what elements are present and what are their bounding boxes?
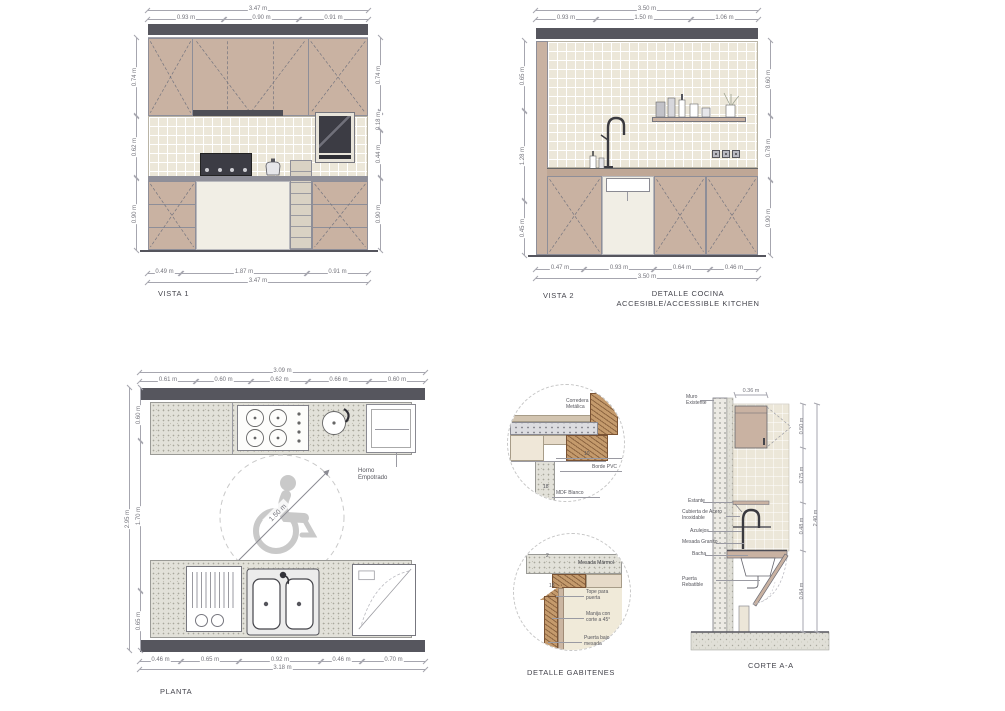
counter-bottles	[588, 148, 606, 170]
vista1-knee-space	[196, 181, 290, 250]
dim-label: 0.84 m	[799, 582, 805, 599]
vista1-upper-cabinet-right	[308, 38, 368, 116]
planta-wall-top	[140, 388, 425, 400]
dim-label: 0.60 m	[387, 377, 407, 384]
cabinet-side-block	[510, 435, 544, 461]
vista1-dim-top-segments: 0.93 m 0.90 m 0.91 m	[148, 11, 368, 21]
door-x-symbol	[707, 177, 757, 254]
vista1-floor-line	[140, 250, 378, 252]
vista2-sink-bowl	[606, 178, 650, 192]
vista1-dim-bottom-total: 3.47 m	[148, 274, 368, 284]
dim-label: 0.44 m	[376, 144, 382, 164]
liftdoor-v-symbol	[193, 39, 308, 115]
leader-borde	[560, 471, 622, 472]
planta-dish-rack	[186, 566, 242, 632]
dim-label: 3.18 m	[272, 665, 292, 672]
door-x-symbol	[313, 182, 367, 249]
vista2-base-door-mid	[654, 176, 706, 255]
vista2-base-door-left	[547, 176, 602, 255]
shelf-section	[733, 501, 769, 505]
vista1-base-drawers-right	[312, 181, 368, 250]
vista2-shelf	[652, 117, 746, 122]
leader-puerta	[548, 642, 582, 643]
detail-kitchen-subtitle-1: DETALLE COCINA	[608, 289, 768, 298]
leader-estante	[703, 502, 733, 503]
wood-rail	[552, 574, 586, 588]
dim-label: 1.50 m	[633, 15, 653, 22]
base-leg	[739, 606, 749, 632]
dim-label: 0.74 m	[132, 67, 138, 87]
vista1-title: VISTA 1	[158, 289, 189, 298]
slide-label: Corredera Metálica	[566, 398, 596, 410]
dim-label: 2.95 m	[125, 509, 131, 529]
dim-label: 0.90 m	[766, 207, 772, 227]
estante-label: Estante	[688, 498, 705, 504]
vista1-upper-cabinet-middle	[192, 38, 309, 116]
outlet-icon	[712, 150, 720, 158]
planta-dim-left-total: 2.95 m	[121, 388, 131, 650]
dim-label: 0.62 m	[269, 377, 289, 384]
door-x-symbol	[149, 182, 195, 249]
dim-label: 0.60 m	[136, 404, 142, 424]
cubierta-label: Cubierta de Acero Inoxidable	[682, 509, 726, 521]
dim-18: 18	[543, 484, 549, 490]
dim-label: 1.70 m	[136, 506, 142, 526]
dim-label: 0.93 m	[176, 15, 196, 22]
leader-bacha	[705, 555, 748, 556]
dim-label: 0.65 m	[136, 610, 142, 630]
vista2-dim-left: 0.65 m 1.28 m 0.45 m	[516, 41, 526, 255]
door-x-symbol	[149, 39, 192, 115]
dim-line-10	[556, 458, 622, 459]
dim-label: 0.93 m	[556, 15, 576, 22]
dim-label: 0.90 m	[376, 204, 382, 224]
dim-label: 2.40 m	[813, 509, 819, 526]
dim-label: 0.90 m	[251, 15, 271, 22]
door-x-symbol	[309, 39, 367, 115]
dim-18b: 18	[549, 583, 555, 589]
oven-label: Horno Empotrado	[358, 468, 402, 482]
dim-label: 0.75 m	[799, 466, 805, 483]
planta-round-sink	[318, 404, 354, 440]
base-line	[510, 461, 606, 462]
vista2-dim-top-segments: 0.93 m 1.50 m 1.06 m	[536, 11, 758, 21]
oven-glass	[319, 116, 351, 153]
upper-cabinet-section	[735, 406, 767, 448]
dim-label: 0.78 m	[766, 138, 772, 158]
door-x-symbol	[548, 177, 601, 254]
dim-label: 0.60 m	[766, 68, 772, 88]
vista2-title: VISTA 2	[543, 291, 574, 300]
vista1-drawer-tower	[290, 160, 312, 250]
leader-manija	[552, 618, 584, 619]
cooktop-knobs	[205, 168, 247, 172]
planta-title: PLANTA	[160, 687, 192, 696]
door-swing-plan	[353, 565, 415, 635]
metal-slide-rail	[510, 422, 598, 435]
dim-label: 1.06 m	[714, 15, 734, 22]
planta-dim-left: 0.60 m 1.70 m 0.65 m	[132, 388, 142, 650]
wall-finish-strip	[727, 398, 733, 632]
vista1-oven	[315, 112, 355, 163]
puerta-rebatible-label: Puerta Rebatible	[682, 576, 716, 588]
mesada-marmol-label: Mesada Mármol	[578, 560, 618, 566]
vista1-dim-right: 0.74 m 0.18 m 0.44 m 0.90 m	[372, 38, 382, 250]
leader-mesada	[716, 543, 744, 544]
bacha-label: Bacha	[692, 551, 706, 557]
vista1-upper-cabinet-left	[148, 38, 193, 116]
corte-title: CORTE A-A	[748, 661, 794, 670]
vista2-dim-bottom-total: 3.50 m	[536, 270, 758, 280]
planta-dim-bottom-total: 3.18 m	[140, 661, 425, 671]
azulejos-label: Azulejos	[690, 528, 709, 534]
dim-label: 3.50 m	[637, 274, 657, 281]
drawing-sheet: 3.47 m 0.93 m 0.90 m 0.91 m	[0, 0, 1005, 711]
leader-mdf	[552, 497, 600, 498]
dim-10: 10	[584, 451, 590, 457]
dim-label: 0.45 m	[520, 218, 526, 238]
leader-puerta-rebatible	[716, 580, 760, 581]
vista1-dim-left: 0.74 m 0.62 m 0.90 m	[128, 38, 138, 250]
outlet-icon	[732, 150, 740, 158]
dim-label: 0.61 m	[158, 377, 178, 384]
planta-double-sink	[246, 568, 320, 636]
wheelchair-icon	[256, 475, 313, 551]
vista1-base-drawers-left	[148, 181, 196, 250]
vista2-floor-line	[528, 255, 766, 257]
planta-dim-top-segments: 0.61 m 0.60 m 0.62 m 0.66 m 0.60 m	[140, 373, 425, 383]
dim-label: 0.62 m	[132, 137, 138, 157]
outlet-icon	[722, 150, 730, 158]
beige-rail	[586, 574, 622, 588]
dim-label: 0.66 m	[328, 377, 348, 384]
vista1-cooktop	[200, 153, 252, 176]
oven-control-strip	[319, 155, 351, 159]
door-x-symbol	[655, 177, 705, 254]
kettle-icon	[264, 157, 282, 176]
leader-azulejos	[708, 531, 742, 532]
detalle-title: DETALLE GABITENES	[527, 668, 615, 677]
dim-label: 0.65 m	[520, 66, 526, 86]
dim-label: 0.90 m	[132, 204, 138, 224]
mesada-granito-label: Mesada Granito	[682, 539, 718, 545]
planta-oven	[366, 404, 416, 453]
vista2-dim-right: 0.60 m 0.78 m 0.90 m	[762, 41, 772, 255]
planta-corner-unit	[352, 564, 416, 636]
leader-muro	[700, 400, 714, 401]
manija-label: Manija con corte a 45°	[586, 611, 618, 623]
dim-label: 0.74 m	[376, 65, 382, 85]
corte-section-drawing: 0.36 m 0.50 m	[683, 386, 835, 668]
borde-pvc-label: Borde PVC	[592, 464, 617, 470]
floor-slab	[691, 632, 829, 650]
leader-tope	[556, 596, 584, 597]
dim-label: 0.91 m	[323, 15, 343, 22]
sink-trap	[747, 576, 758, 588]
mdf-label: MDF Blanco	[556, 490, 584, 496]
dim-label: 0.48 m	[799, 517, 805, 534]
vista1-soffit	[148, 24, 368, 35]
leader-cubierta	[726, 516, 740, 517]
vista2-soffit	[536, 28, 758, 39]
oven-leader-line	[396, 453, 397, 467]
dim-label: 0.50 m	[799, 417, 805, 434]
puerta-label: Puerta bajo mesada	[584, 635, 614, 647]
tope-label: Tope para puerta	[586, 589, 614, 601]
slide-top-strip	[510, 415, 598, 422]
sink-bowl-section	[741, 558, 775, 576]
dim-2: 2	[546, 553, 549, 559]
sink-drain-line	[627, 192, 628, 201]
dim-label: 3.47 m	[248, 278, 268, 285]
detail-kitchen-subtitle-2: ACCESIBLE/ACCESSIBLE KITCHEN	[608, 299, 768, 308]
vista2-countertop	[547, 168, 758, 176]
dim-label: 0.60 m	[213, 377, 233, 384]
vista2-base-door-right	[706, 176, 758, 255]
panel-column	[535, 461, 555, 501]
shelf-items	[652, 91, 748, 117]
dim-label: 1.28 m	[520, 146, 526, 166]
corte-top-dim: 0.36 m	[743, 388, 760, 394]
planta-wall-bottom	[140, 640, 425, 652]
